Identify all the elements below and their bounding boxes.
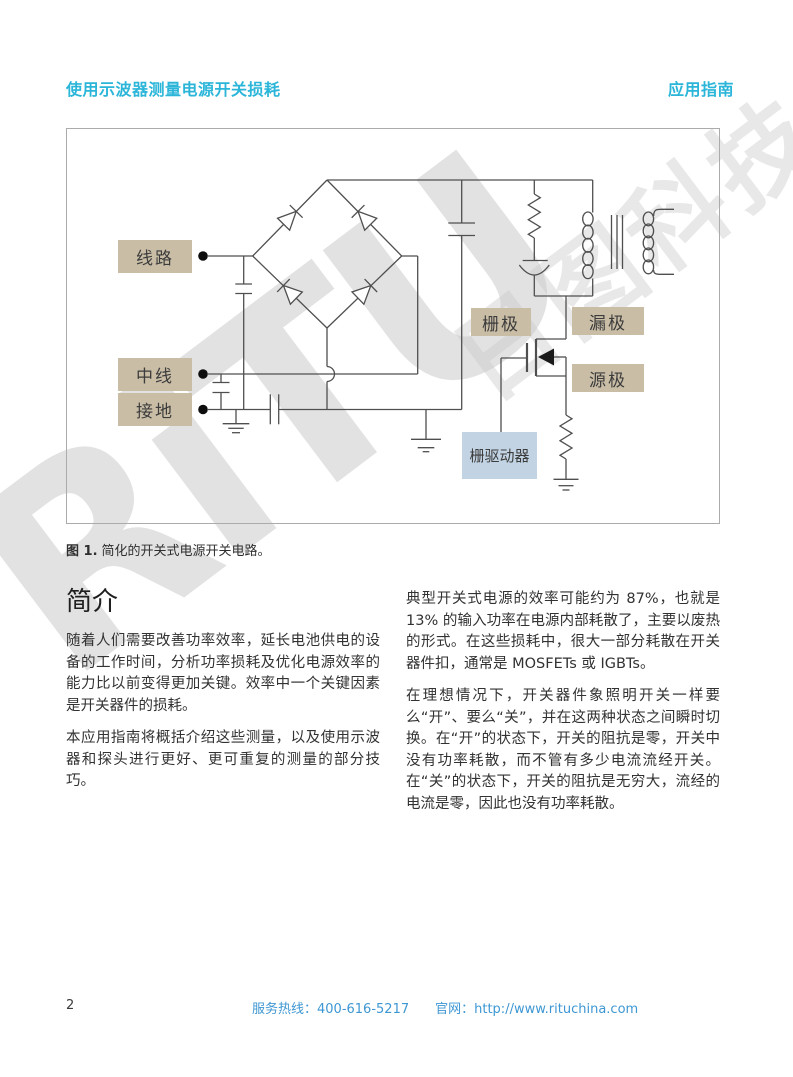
transformer-core <box>612 215 623 269</box>
ground-symbol-3 <box>554 479 579 490</box>
page-header: 使用示波器测量电源开关损耗 应用指南 <box>66 76 734 100</box>
figure-1-schematic: 线路 中线 接地 栅极 漏极 源极 栅驱动器 <box>66 128 720 524</box>
section-heading-intro: 简介 <box>66 586 380 618</box>
ground-symbol-1 <box>223 410 250 433</box>
transformer-secondary <box>643 209 674 274</box>
right-paragraph-1: 典型开关式电源的效率可能约为 87%，也就是 13% 的输入功率在电源内部耗散了… <box>406 589 720 675</box>
page-number: 2 <box>66 998 74 1013</box>
x-capacitor <box>270 394 278 424</box>
website: 官网：http://www.rituchina.com <box>435 998 638 1017</box>
hotline: 服务热线：400-616-5217 <box>252 998 409 1017</box>
right-column: 典型开关式电源的效率可能约为 87%，也就是 13% 的输入功率在电源内部耗散了… <box>406 586 720 826</box>
document-page: RiTU 日图科技 使用示波器测量电源开关损耗 应用指南 <box>0 0 793 1077</box>
input-wires <box>208 256 462 410</box>
label-drain: 漏极 <box>572 307 644 335</box>
footer-links: 服务热线：400-616-5217 官网：http://www.rituchin… <box>252 998 638 1017</box>
mosfet-arrow <box>538 349 554 366</box>
y-capacitor <box>213 374 230 410</box>
terminal-dots <box>198 251 208 414</box>
intro-paragraph-1: 随着人们需要改善功率效率，延长电池供电的设备的工作时间，分析功率损耗及优化电源效… <box>66 631 380 717</box>
bulk-capacitor <box>448 180 475 410</box>
source-resistor <box>560 415 572 479</box>
bridge-output-wire <box>327 328 335 410</box>
label-gate: 栅极 <box>471 308 531 336</box>
label-source: 源极 <box>572 364 644 392</box>
left-column: 简介 随着人们需要改善功率效率，延长电池供电的设备的工作时间，分析功率损耗及优化… <box>66 586 380 826</box>
line-filter-capacitor <box>235 256 252 410</box>
right-paragraph-2: 在理想情况下，开关器件象照明开关一样要么“开”、要么“关”，并在这两种状态之间瞬… <box>406 686 720 815</box>
figure-caption-text: 简化的开关式电源开关电路。 <box>102 544 271 559</box>
figure-caption-label: 图 1. <box>66 544 98 559</box>
hotline-number: 400-616-5217 <box>317 1002 409 1017</box>
transformer-primary <box>583 180 593 296</box>
label-neutral: 中线 <box>118 358 192 391</box>
snubber-resistor <box>528 180 540 238</box>
website-label: 官网： <box>435 1002 474 1017</box>
hotline-label: 服务热线： <box>252 1002 317 1017</box>
label-line: 线路 <box>118 240 192 273</box>
header-title: 使用示波器测量电源开关损耗 <box>66 76 281 100</box>
website-url[interactable]: http://www.rituchina.com <box>474 1002 638 1017</box>
figure-caption: 图 1.简化的开关式电源开关电路。 <box>66 540 271 559</box>
ground-symbol-2 <box>411 410 441 452</box>
page-footer: 2 服务热线：400-616-5217 官网：http://www.rituch… <box>66 998 727 1018</box>
body-columns: 简介 随着人们需要改善功率效率，延长电池供电的设备的工作时间，分析功率损耗及优化… <box>66 586 720 826</box>
header-doc-type: 应用指南 <box>668 76 734 100</box>
diode-bridge <box>253 180 402 328</box>
label-ground: 接地 <box>118 393 192 426</box>
label-gate-driver: 栅驱动器 <box>462 432 537 479</box>
snubber-capacitor <box>519 238 549 296</box>
intro-paragraph-2: 本应用指南将概括介绍这些测量，以及使用示波器和探头进行更好、更可重复的测量的部分… <box>66 728 380 793</box>
